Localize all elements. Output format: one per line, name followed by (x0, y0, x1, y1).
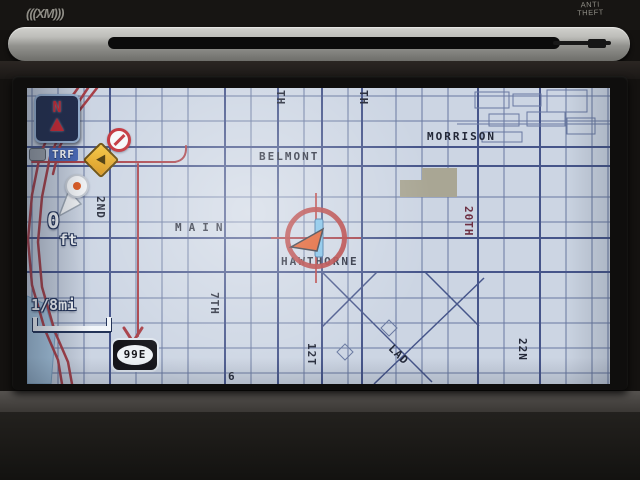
dashboard-top (0, 0, 640, 30)
map-scale-bar (33, 317, 111, 331)
compass-arrow-icon (50, 118, 64, 131)
dashboard-bottom (0, 412, 640, 480)
anti-theft-label: ANTI THEFT (577, 1, 604, 18)
distance-value: 0 (47, 210, 77, 232)
cd-slot-opening (108, 37, 560, 49)
street-label: 2ND (94, 196, 107, 219)
route-shield-label: 99E (124, 348, 147, 361)
street-label: MORRISON (427, 130, 496, 143)
street-label: TH (274, 90, 287, 105)
building-block (400, 168, 457, 197)
traffic-button[interactable]: TRF (29, 148, 78, 161)
anti-theft-line2: THEFT (577, 9, 604, 18)
street-label: 22N (516, 338, 529, 361)
compass-north-label: N (36, 97, 78, 117)
compass-icon: N (34, 94, 80, 143)
street-label: HAWTHORNE (281, 255, 359, 268)
road-closed-icon (107, 128, 131, 152)
street-label: 6 (228, 370, 237, 383)
nav-map-screen[interactable]: MORRISONBELMONTMAINHAWTHORNETHTH2ND7TH12… (27, 88, 610, 384)
route-shield-99e: 99E (113, 340, 157, 370)
map-scale: 1/8mi (31, 297, 111, 331)
street-label: 7TH (208, 292, 221, 315)
cd-slot (8, 27, 630, 61)
poi-pin-head (65, 174, 89, 198)
traffic-button-label: TRF (49, 148, 78, 161)
map-scale-label: 1/8mi (31, 297, 111, 313)
poi-pin-dot (73, 182, 81, 190)
diagonal-streets (322, 272, 484, 384)
distance-readout: 0 ft (47, 210, 77, 248)
route-shield-oval: 99E (117, 345, 153, 365)
street-label: 20TH (462, 206, 475, 237)
distance-unit: ft (59, 232, 77, 248)
xm-radio-logo: (((XM))) (26, 6, 63, 21)
unit-bottom-edge (0, 391, 640, 413)
street-label: TH (357, 90, 370, 105)
street-label: 12T (305, 343, 318, 366)
street-label: BELMONT (259, 150, 319, 163)
cd-slot-notch (588, 39, 606, 48)
street-label: MAIN (175, 221, 230, 234)
incident-arrow-icon (96, 155, 105, 165)
car-icon (29, 148, 46, 161)
